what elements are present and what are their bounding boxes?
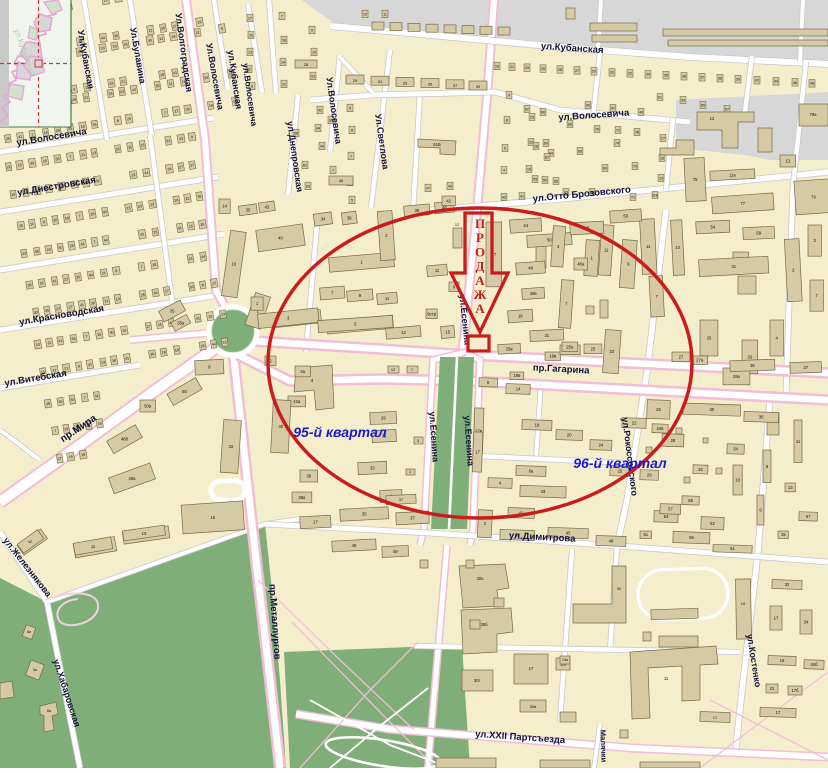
svg-text:58: 58 [756,231,761,236]
svg-text:18: 18 [175,348,180,353]
svg-text:18: 18 [65,216,70,221]
svg-text:34: 34 [321,217,326,222]
svg-text:15: 15 [781,532,786,537]
svg-text:43: 43 [264,204,269,209]
svg-text:48а: 48а [577,262,585,267]
svg-text:11: 11 [383,12,387,16]
svg-text:44: 44 [89,273,94,278]
svg-text:48а: 48а [129,476,137,481]
svg-text:51Б: 51Б [433,142,441,147]
svg-text:66: 66 [568,122,572,126]
svg-text:50: 50 [547,238,552,243]
svg-text:32: 32 [628,72,632,76]
svg-text:13: 13 [142,531,147,536]
svg-text:49: 49 [393,549,398,554]
svg-text:35а: 35а [177,320,185,325]
svg-text:19: 19 [780,658,785,663]
svg-text:25: 25 [141,293,146,298]
svg-text:49: 49 [448,184,452,188]
svg-text:30в: 30в [530,704,537,709]
svg-text:4: 4 [503,168,505,172]
svg-text:21: 21 [510,65,514,69]
svg-text:1: 1 [409,470,411,474]
svg-text:23: 23 [120,90,125,95]
svg-text:21: 21 [116,147,121,152]
svg-text:15: 15 [18,163,23,168]
svg-text:67: 67 [545,155,549,159]
svg-text:44: 44 [320,144,324,148]
svg-text:23: 23 [140,143,145,148]
svg-text:41: 41 [88,362,93,367]
svg-text:35: 35 [246,207,251,212]
svg-text:16: 16 [174,198,179,203]
svg-text:13: 13 [101,360,106,365]
svg-text:38: 38 [415,208,420,213]
svg-text:48: 48 [810,82,814,86]
svg-text:9стр: 9стр [427,311,436,316]
svg-text:23: 23 [109,81,114,86]
svg-text:13: 13 [785,159,790,164]
svg-text:26: 26 [656,407,661,412]
svg-text:33: 33 [747,354,752,359]
svg-text:35: 35 [204,76,209,81]
svg-text:13: 13 [208,314,213,319]
svg-text:25: 25 [72,97,77,102]
svg-text:23: 23 [530,115,534,119]
svg-text:96-й квартал: 96-й квартал [573,455,667,471]
svg-text:16: 16 [282,38,286,42]
svg-text:29: 29 [353,78,358,83]
svg-text:18: 18 [197,20,202,25]
svg-text:32: 32 [785,582,790,587]
svg-text:11: 11 [158,323,162,328]
svg-text:25в: 25в [506,346,514,351]
svg-text:48в: 48в [530,291,538,296]
svg-text:7: 7 [350,154,352,158]
svg-text:33: 33 [403,80,408,85]
svg-text:34: 34 [646,73,650,77]
svg-text:А: А [475,273,485,288]
svg-text:38: 38 [306,474,311,479]
svg-text:20: 20 [567,433,572,438]
svg-text:43: 43 [502,195,506,199]
svg-text:15: 15 [222,340,227,345]
svg-text:24: 24 [599,443,604,448]
svg-text:15: 15 [153,230,158,235]
svg-text:13: 13 [92,151,97,156]
svg-text:16: 16 [108,91,113,96]
svg-text:15: 15 [445,330,450,335]
svg-text:11: 11 [664,676,669,681]
svg-text:44: 44 [101,36,106,41]
svg-text:18: 18 [69,244,74,249]
svg-text:13: 13 [401,330,406,335]
svg-text:45: 45 [339,178,344,183]
svg-text:61: 61 [303,163,307,167]
svg-text:50: 50 [623,214,628,219]
svg-text:23: 23 [221,312,226,317]
svg-text:23: 23 [311,74,315,78]
svg-text:15: 15 [92,122,97,127]
svg-text:25: 25 [11,193,16,198]
svg-text:17: 17 [313,520,318,525]
svg-text:30б: 30б [480,622,488,627]
svg-text:30: 30 [58,246,63,251]
svg-text:37: 37 [399,497,404,502]
svg-text:Д: Д [476,259,485,274]
svg-text:37: 37 [803,365,808,370]
svg-text:25а: 25а [566,344,574,349]
svg-text:44: 44 [103,238,108,243]
svg-text:74: 74 [615,141,619,145]
svg-text:27: 27 [146,324,151,329]
svg-text:4а: 4а [300,369,305,374]
svg-text:17: 17 [774,616,779,621]
svg-text:Малячки: Малячки [598,730,608,763]
svg-text:70: 70 [595,127,599,131]
svg-text:33: 33 [370,466,375,471]
svg-text:44: 44 [316,126,320,130]
svg-text:3: 3 [417,439,419,443]
svg-text:21: 21 [40,281,45,286]
svg-text:41: 41 [173,71,178,76]
svg-text:37: 37 [453,83,458,88]
svg-text:17: 17 [713,715,718,720]
svg-text:60: 60 [544,141,548,145]
svg-text:33: 33 [228,444,233,449]
svg-text:36: 36 [759,415,764,420]
svg-text:25: 25 [200,222,205,227]
svg-text:11: 11 [128,145,132,150]
svg-text:11: 11 [30,222,34,227]
svg-text:79а: 79а [810,112,818,117]
svg-text:44: 44 [212,342,217,347]
svg-text:11Б: 11Б [652,193,659,197]
svg-text:23: 23 [46,248,51,253]
svg-text:12: 12 [391,368,395,372]
svg-text:44: 44 [774,80,778,84]
svg-text:59: 59 [689,535,694,540]
svg-text:27: 27 [575,69,579,73]
svg-text:51: 51 [643,532,648,537]
svg-text:37: 37 [410,516,415,521]
svg-text:48б: 48б [121,437,129,442]
svg-text:25: 25 [43,159,48,164]
svg-text:31: 31 [378,79,383,84]
svg-text:27а: 27а [696,358,704,363]
svg-text:7: 7 [281,14,283,18]
svg-text:11: 11 [104,299,108,304]
svg-text:41: 41 [103,210,108,215]
svg-text:35: 35 [750,363,755,368]
svg-text:36: 36 [347,216,352,221]
svg-text:49: 49 [639,110,643,114]
svg-text:21: 21 [195,31,200,36]
svg-text:75: 75 [693,177,698,182]
svg-text:11: 11 [148,28,152,33]
svg-text:19в: 19в [549,354,557,359]
svg-text:53: 53 [681,98,685,102]
svg-text:35: 35 [155,84,160,89]
svg-text:А: А [475,301,485,316]
svg-text:10: 10 [735,478,740,483]
svg-text:35: 35 [664,74,668,78]
svg-text:18: 18 [112,358,117,363]
svg-text:11: 11 [168,82,172,87]
svg-text:34: 34 [804,620,809,625]
svg-text:16: 16 [161,26,166,31]
svg-text:35: 35 [55,157,60,162]
svg-text:30: 30 [70,398,75,403]
svg-text:66: 66 [578,149,582,153]
svg-text:22: 22 [632,421,637,426]
svg-text:18: 18 [81,453,86,458]
svg-text:18: 18 [152,263,157,268]
svg-text:41: 41 [52,279,57,284]
svg-text:30: 30 [709,407,714,412]
svg-text:21: 21 [84,95,89,100]
svg-text:27: 27 [212,281,217,286]
svg-text:8: 8 [351,128,353,132]
svg-text:42: 42 [318,108,322,112]
svg-text:79: 79 [633,164,637,168]
svg-text:57: 57 [725,107,729,111]
svg-text:35: 35 [170,309,175,314]
svg-text:29: 29 [381,416,386,421]
svg-text:12: 12 [455,223,459,227]
svg-text:63: 63 [306,184,310,188]
svg-text:8: 8 [506,118,508,122]
svg-text:30: 30 [19,224,24,229]
svg-text:10: 10 [363,12,367,16]
svg-text:15: 15 [660,156,664,160]
svg-text:43: 43 [541,489,546,494]
svg-text:55: 55 [543,178,547,182]
svg-text:10: 10 [675,245,680,250]
svg-text:15: 15 [53,218,58,223]
svg-text:13: 13 [116,297,121,302]
svg-text:33: 33 [190,285,195,290]
svg-text:10: 10 [312,50,316,54]
svg-text:59: 59 [554,179,558,183]
svg-text:41: 41 [80,242,85,247]
svg-text:72: 72 [616,128,620,132]
svg-text:28: 28 [671,438,676,443]
svg-text:45: 45 [352,543,357,548]
svg-text:41: 41 [178,226,183,231]
svg-text:21: 21 [150,202,155,207]
svg-text:15: 15 [210,515,215,520]
svg-text:16: 16 [112,44,117,49]
svg-text:30: 30 [186,107,191,112]
svg-text:25: 25 [591,346,596,351]
svg-text:11: 11 [604,248,609,253]
svg-text:29: 29 [647,473,652,478]
svg-text:44: 44 [201,255,206,260]
svg-text:46: 46 [793,81,797,85]
svg-text:21: 21 [770,686,775,691]
svg-text:62: 62 [525,107,529,111]
svg-text:27: 27 [179,165,184,170]
svg-text:33: 33 [167,167,172,172]
svg-text:30: 30 [150,352,155,357]
svg-text:29: 29 [592,70,596,74]
svg-text:50: 50 [182,389,187,394]
svg-text:25: 25 [304,62,309,67]
svg-text:34б: 34б [810,662,818,667]
svg-text:18: 18 [534,144,538,148]
svg-text:19: 19 [527,167,531,171]
svg-text:10: 10 [741,601,746,606]
svg-text:21: 21 [64,277,69,282]
svg-text:14: 14 [281,60,285,64]
svg-text:95-й квартал: 95-й квартал [293,424,387,440]
svg-text:33: 33 [122,328,127,333]
svg-text:77: 77 [740,201,745,206]
svg-text:51: 51 [658,95,662,99]
svg-text:17: 17 [475,450,480,455]
svg-text:21: 21 [166,139,171,144]
svg-text:53: 53 [664,514,669,519]
svg-text:44: 44 [144,171,149,176]
svg-text:15: 15 [97,332,102,337]
svg-text:25: 25 [27,283,32,288]
svg-text:71: 71 [631,195,635,199]
svg-text:42: 42 [28,539,33,544]
svg-text:34: 34 [733,447,738,452]
svg-text:41: 41 [124,42,129,47]
svg-text:24в: 24в [657,426,665,431]
svg-text:18: 18 [160,73,165,78]
svg-text:31: 31 [731,264,736,269]
svg-text:23: 23 [525,66,529,70]
svg-text:30: 30 [58,400,63,405]
svg-text:15а: 15а [562,658,569,662]
svg-text:11: 11 [385,296,390,301]
svg-text:42: 42 [755,79,759,83]
svg-text:11: 11 [796,439,801,444]
svg-text:6а: 6а [529,469,534,474]
svg-text:17: 17 [776,710,781,715]
svg-text:19в: 19в [513,373,521,378]
svg-text:33: 33 [179,137,184,142]
svg-text:27: 27 [679,354,684,359]
svg-text:25: 25 [127,117,132,122]
svg-text:21: 21 [81,153,86,158]
svg-text:15: 15 [249,33,253,37]
svg-text:79: 79 [811,194,816,199]
svg-text:44: 44 [523,223,528,228]
svg-text:52: 52 [710,521,715,526]
svg-text:30: 30 [148,38,153,43]
svg-text:30: 30 [114,34,119,39]
svg-text:27: 27 [190,163,195,168]
svg-text:13: 13 [159,37,164,42]
svg-text:27: 27 [165,289,170,294]
svg-text:45: 45 [586,103,590,107]
svg-text:17: 17 [248,16,252,20]
svg-text:55: 55 [688,498,693,503]
svg-text:12: 12 [282,82,286,86]
svg-text:27: 27 [174,109,179,114]
svg-text:35: 35 [428,82,433,87]
svg-text:25: 25 [707,336,712,341]
svg-text:39: 39 [476,84,481,89]
svg-text:29а: 29а [733,374,741,379]
svg-text:9: 9 [349,106,351,110]
svg-text:32: 32 [698,467,703,472]
svg-text:41: 41 [125,356,130,361]
svg-text:Ж: Ж [474,287,487,302]
svg-text:23: 23 [138,204,143,209]
svg-text:40: 40 [278,424,283,429]
svg-text:33: 33 [30,161,35,166]
svg-text:18: 18 [161,350,166,355]
svg-text:17: 17 [529,666,534,671]
svg-text:54: 54 [710,225,715,230]
svg-text:21: 21 [121,79,126,84]
svg-text:11: 11 [646,244,651,249]
svg-text:33: 33 [100,46,105,51]
svg-text:49: 49 [609,539,614,544]
svg-text:53: 53 [533,177,537,181]
svg-text:16: 16 [68,455,73,460]
svg-text:35: 35 [35,249,40,254]
svg-text:5: 5 [504,146,506,150]
svg-text:66: 66 [541,110,545,114]
svg-text:23: 23 [609,349,614,354]
svg-text:40: 40 [278,235,283,240]
svg-text:11: 11 [47,341,51,346]
svg-text:13: 13 [659,176,663,180]
svg-text:69: 69 [603,166,607,170]
svg-text:13: 13 [248,50,252,54]
svg-text:50а: 50а [144,404,152,409]
svg-text:39: 39 [736,78,740,82]
svg-text:21: 21 [6,165,11,170]
svg-text:41: 41 [520,194,524,198]
svg-text:17б: 17б [791,688,799,693]
svg-text:13: 13 [788,485,793,490]
svg-text:23: 23 [131,173,136,178]
svg-text:25: 25 [6,137,11,142]
svg-text:15: 15 [189,224,194,229]
svg-text:35: 35 [197,194,202,199]
svg-text:35: 35 [71,337,76,342]
svg-text:23: 23 [188,257,193,262]
svg-text:25: 25 [541,67,545,71]
svg-text:23: 23 [36,343,41,348]
svg-text:15: 15 [126,206,131,211]
svg-text:37: 37 [700,76,704,80]
svg-text:41: 41 [58,339,63,344]
svg-text:14: 14 [222,204,227,209]
svg-text:25: 25 [46,402,51,407]
svg-text:О: О [475,244,485,259]
svg-text:36: 36 [682,75,686,79]
svg-text:18: 18 [535,423,540,428]
svg-text:55: 55 [701,103,705,107]
svg-text:17: 17 [661,136,665,140]
svg-text:61: 61 [730,546,735,551]
svg-text:35: 35 [362,512,367,517]
svg-text:14: 14 [516,387,521,392]
svg-text:30г: 30г [474,678,481,683]
svg-text:30а: 30а [477,576,485,581]
svg-text:9: 9 [508,93,510,97]
svg-text:12: 12 [710,116,715,121]
svg-text:47: 47 [426,186,430,190]
